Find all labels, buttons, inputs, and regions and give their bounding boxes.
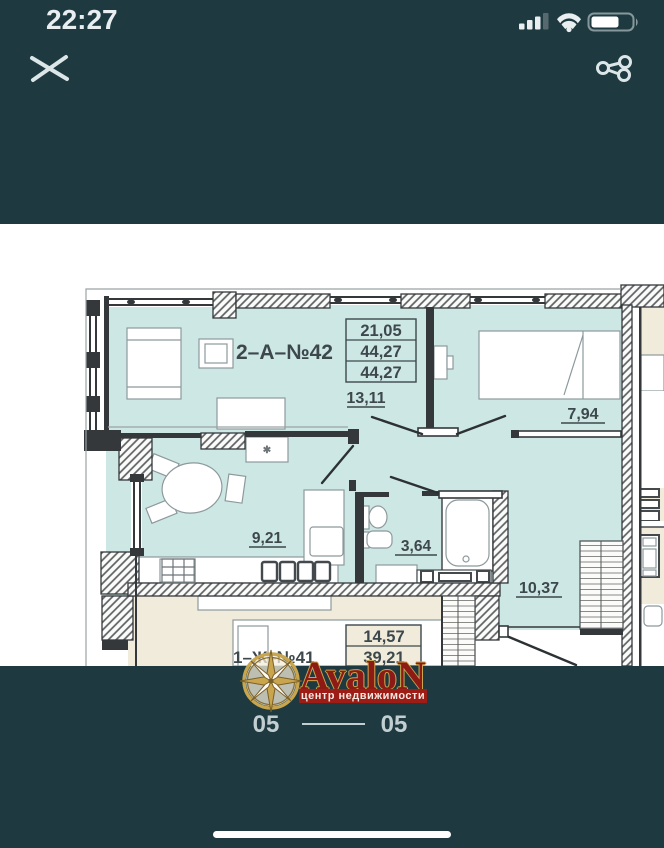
- svg-text:10,37: 10,37: [519, 580, 559, 597]
- svg-text:21,05: 21,05: [360, 322, 401, 340]
- svg-text:7,94: 7,94: [567, 406, 598, 423]
- svg-text:44,27: 44,27: [360, 343, 401, 361]
- svg-text:✱: ✱: [263, 445, 272, 456]
- svg-text:3,64: 3,64: [401, 538, 432, 555]
- svg-text:13,11: 13,11: [346, 390, 385, 407]
- svg-text:44,27: 44,27: [360, 364, 401, 382]
- svg-text:9,21: 9,21: [252, 530, 283, 547]
- svg-text:14,57: 14,57: [363, 628, 404, 646]
- svg-text:2–А–№42: 2–А–№42: [236, 341, 333, 364]
